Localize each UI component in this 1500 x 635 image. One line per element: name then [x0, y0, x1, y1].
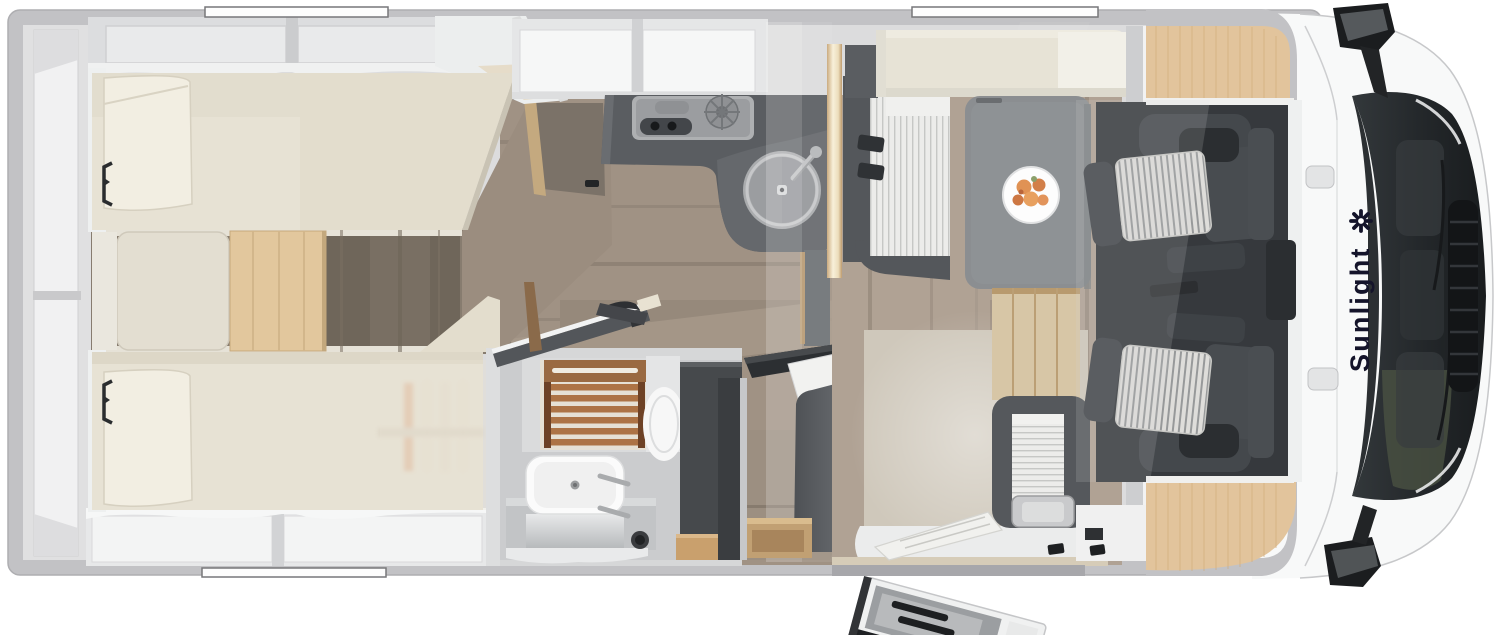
svg-text:Sunlight: Sunlight [1345, 246, 1375, 372]
